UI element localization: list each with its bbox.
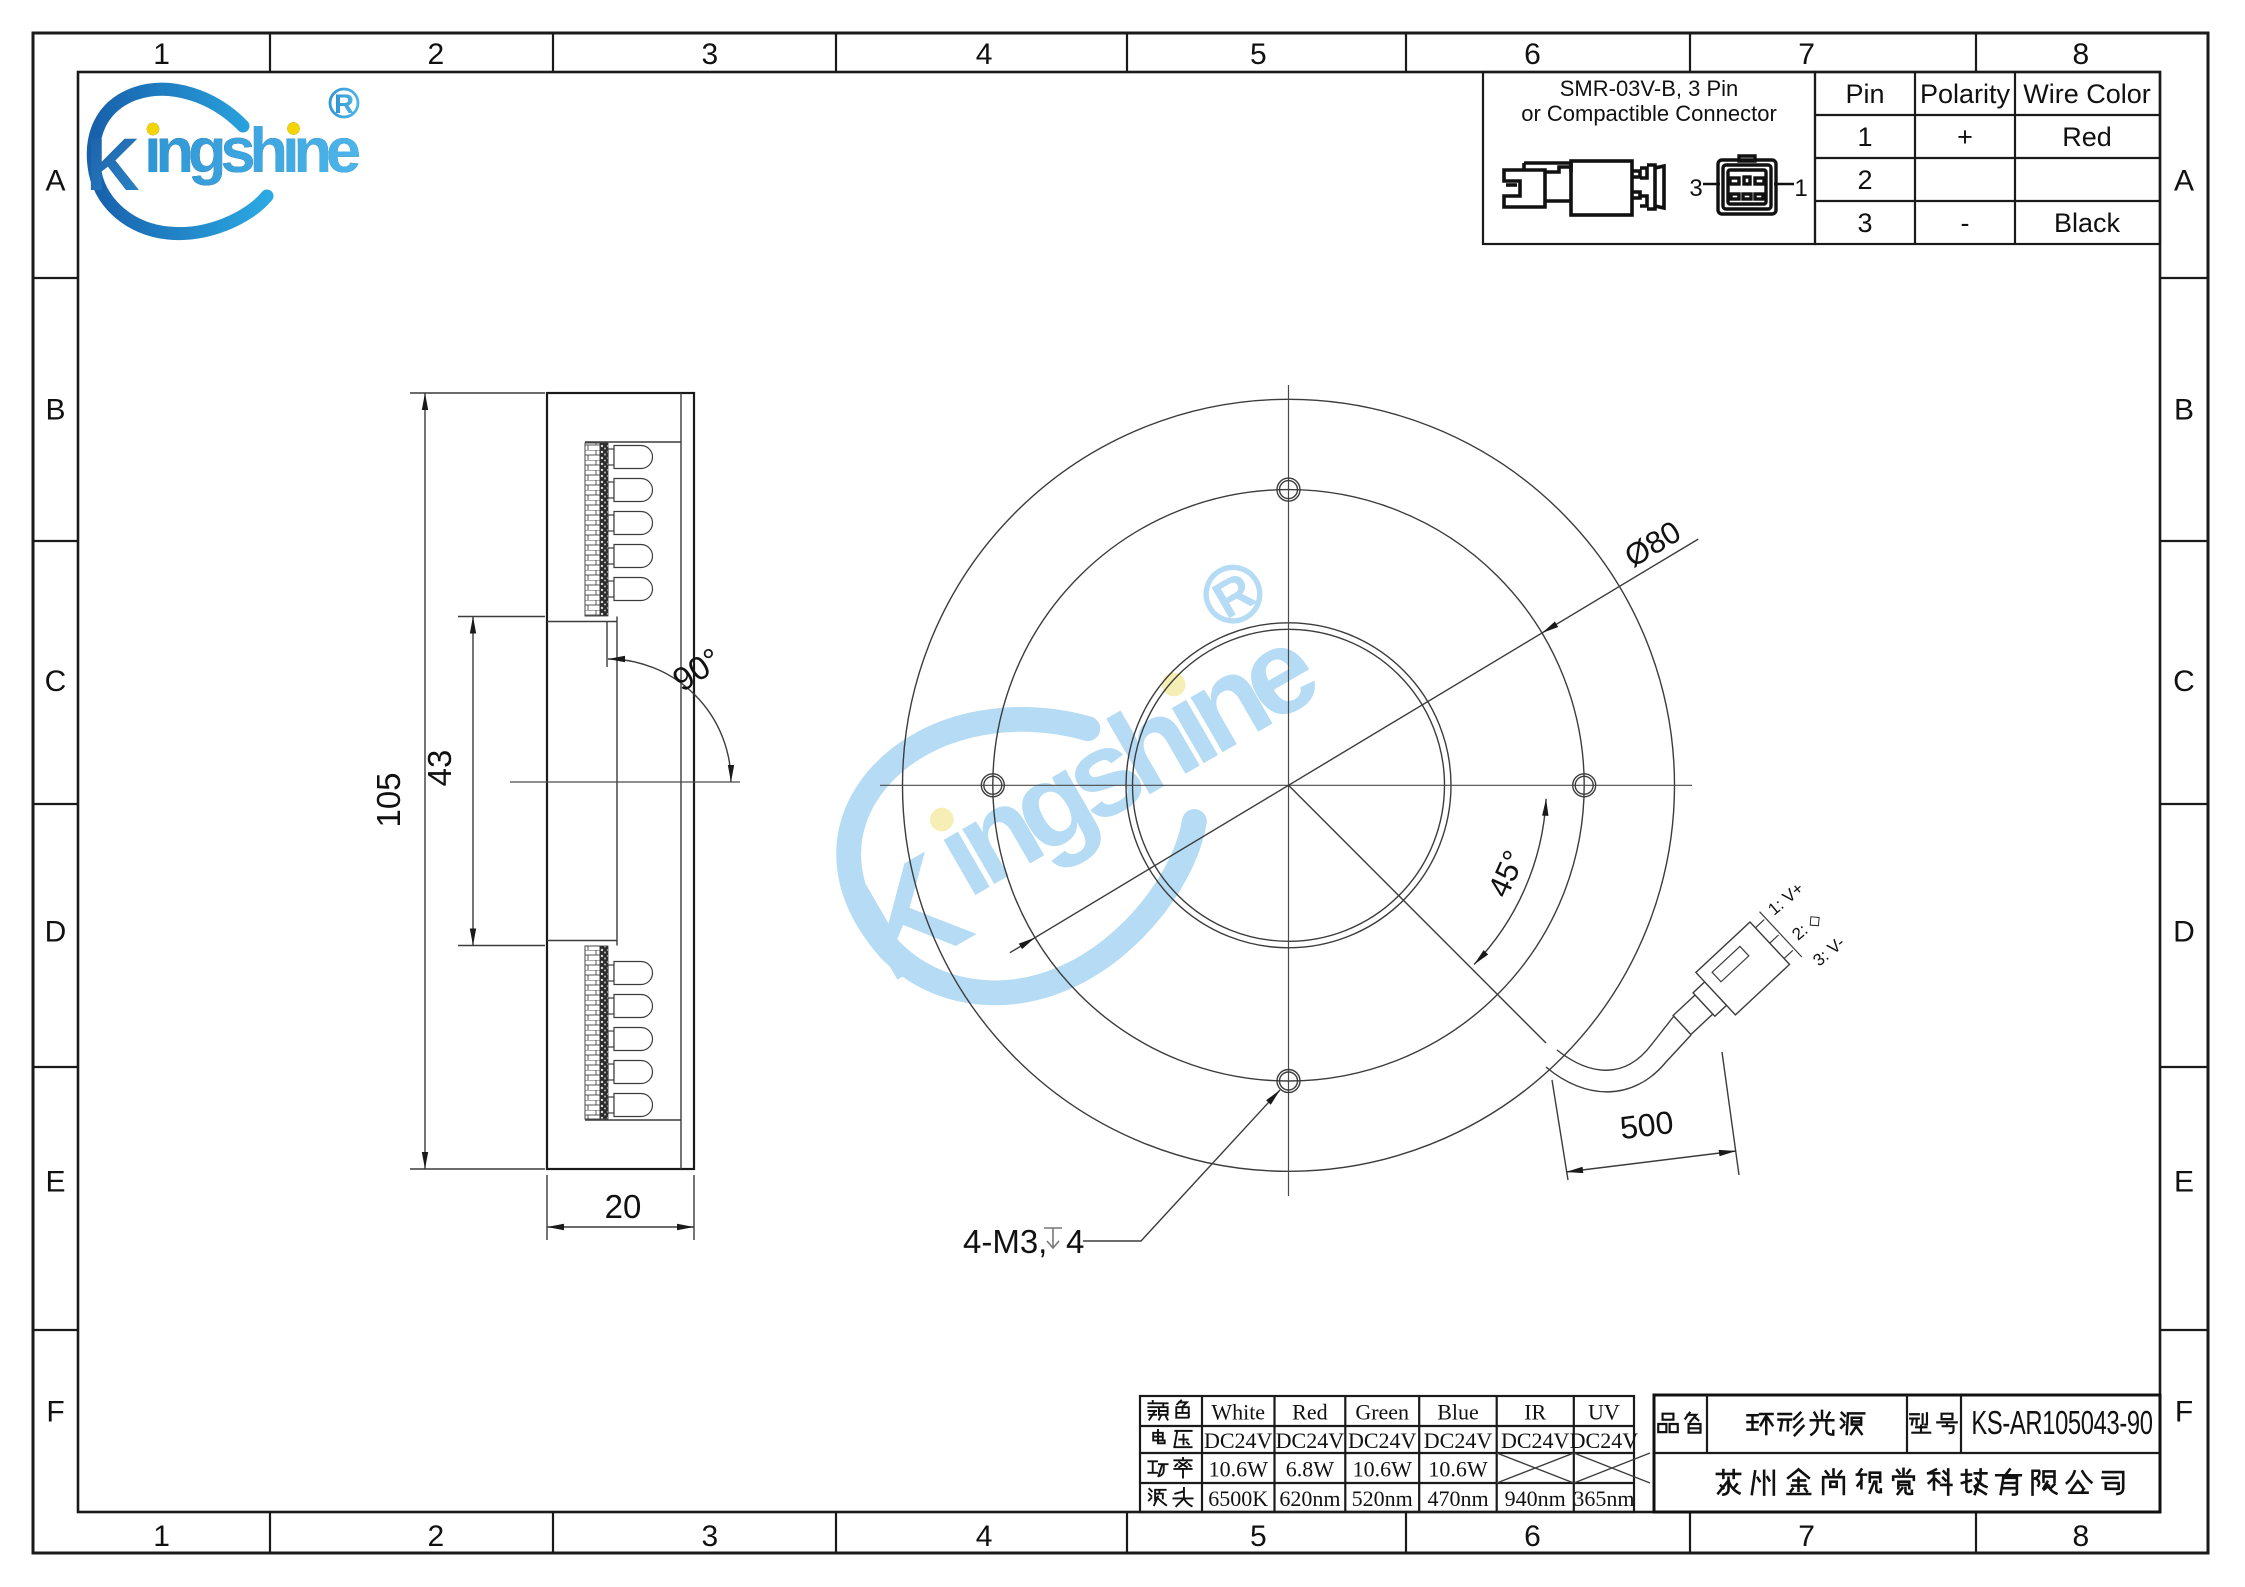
svg-text:A: A bbox=[45, 165, 65, 198]
svg-text:DC24V: DC24V bbox=[1424, 1428, 1493, 1453]
svg-text:E: E bbox=[2174, 1166, 2194, 1199]
svg-text:365nm: 365nm bbox=[1573, 1486, 1634, 1511]
svg-text:Wire Color: Wire Color bbox=[2023, 79, 2151, 109]
svg-text:DC24V: DC24V bbox=[1501, 1428, 1570, 1453]
svg-text:620nm: 620nm bbox=[1279, 1486, 1340, 1511]
svg-text:4: 4 bbox=[976, 1520, 993, 1553]
svg-text:8: 8 bbox=[2072, 1520, 2089, 1553]
svg-text:C: C bbox=[45, 665, 67, 698]
svg-text:+: + bbox=[1957, 122, 1973, 152]
svg-text:1: 1 bbox=[153, 38, 170, 71]
svg-text:UV: UV bbox=[1588, 1400, 1620, 1425]
svg-text:IR: IR bbox=[1524, 1400, 1546, 1425]
svg-text:2: 2 bbox=[427, 1520, 444, 1553]
svg-text:4: 4 bbox=[1066, 1223, 1084, 1260]
svg-text:6: 6 bbox=[1524, 1520, 1541, 1553]
svg-text:SMR-03V-B, 3 Pin: SMR-03V-B, 3 Pin bbox=[1560, 76, 1739, 101]
svg-text:E: E bbox=[45, 1166, 65, 1199]
svg-text:KS-AR105043-90: KS-AR105043-90 bbox=[1971, 1405, 2152, 1442]
svg-text:Red: Red bbox=[2062, 122, 2112, 152]
svg-text:-: - bbox=[1961, 208, 1970, 238]
svg-text:5: 5 bbox=[1250, 1520, 1267, 1553]
svg-text:Green: Green bbox=[1355, 1400, 1409, 1425]
svg-text:A: A bbox=[2174, 165, 2194, 198]
svg-text:6.8W: 6.8W bbox=[1286, 1457, 1335, 1482]
svg-text:DC24V: DC24V bbox=[1348, 1428, 1417, 1453]
svg-text:3: 3 bbox=[702, 38, 719, 71]
svg-text:6: 6 bbox=[1524, 38, 1541, 71]
svg-text:7: 7 bbox=[1798, 38, 1815, 71]
svg-text:520nm: 520nm bbox=[1352, 1486, 1413, 1511]
svg-text:Pin: Pin bbox=[1845, 79, 1884, 109]
svg-text:Black: Black bbox=[2054, 208, 2121, 238]
svg-text:2: 2 bbox=[1857, 165, 1872, 195]
svg-text:105: 105 bbox=[370, 772, 407, 827]
svg-text:1: 1 bbox=[1794, 175, 1807, 202]
svg-text:4: 4 bbox=[976, 38, 993, 71]
svg-text:F: F bbox=[2175, 1395, 2193, 1428]
svg-text:B: B bbox=[45, 393, 65, 426]
svg-text:3: 3 bbox=[1689, 175, 1702, 202]
svg-text:Red: Red bbox=[1292, 1400, 1327, 1425]
svg-text:2: 2 bbox=[427, 38, 444, 71]
svg-text:500: 500 bbox=[1618, 1104, 1675, 1146]
svg-text:1: 1 bbox=[1857, 122, 1872, 152]
svg-text:10.6W: 10.6W bbox=[1209, 1457, 1269, 1482]
svg-text:D: D bbox=[2173, 915, 2195, 948]
svg-text:D: D bbox=[45, 915, 67, 948]
svg-text:3: 3 bbox=[702, 1520, 719, 1553]
svg-text:7: 7 bbox=[1798, 1520, 1815, 1553]
svg-text:DC24V: DC24V bbox=[1570, 1428, 1639, 1453]
svg-text:C: C bbox=[2173, 665, 2195, 698]
svg-text:470nm: 470nm bbox=[1427, 1486, 1488, 1511]
svg-text:43: 43 bbox=[421, 750, 458, 787]
svg-text:10.6W: 10.6W bbox=[1428, 1457, 1488, 1482]
svg-text:4-M3,: 4-M3, bbox=[963, 1223, 1047, 1260]
svg-text:5: 5 bbox=[1250, 38, 1267, 71]
svg-text:DC24V: DC24V bbox=[1204, 1428, 1273, 1453]
svg-text:20: 20 bbox=[605, 1188, 642, 1225]
svg-text:Polarity: Polarity bbox=[1920, 79, 2011, 109]
svg-text:6500K: 6500K bbox=[1208, 1486, 1268, 1511]
svg-text:10.6W: 10.6W bbox=[1353, 1457, 1413, 1482]
svg-text:DC24V: DC24V bbox=[1276, 1428, 1345, 1453]
svg-text:F: F bbox=[46, 1395, 64, 1428]
svg-text:B: B bbox=[2174, 393, 2194, 426]
svg-text:or Compactible Connector: or Compactible Connector bbox=[1521, 101, 1777, 126]
svg-text:8: 8 bbox=[2072, 38, 2089, 71]
svg-text:940nm: 940nm bbox=[1505, 1486, 1566, 1511]
svg-text:3: 3 bbox=[1857, 208, 1872, 238]
svg-text:1: 1 bbox=[153, 1520, 170, 1553]
svg-text:Blue: Blue bbox=[1437, 1400, 1479, 1425]
svg-text:White: White bbox=[1211, 1400, 1265, 1425]
